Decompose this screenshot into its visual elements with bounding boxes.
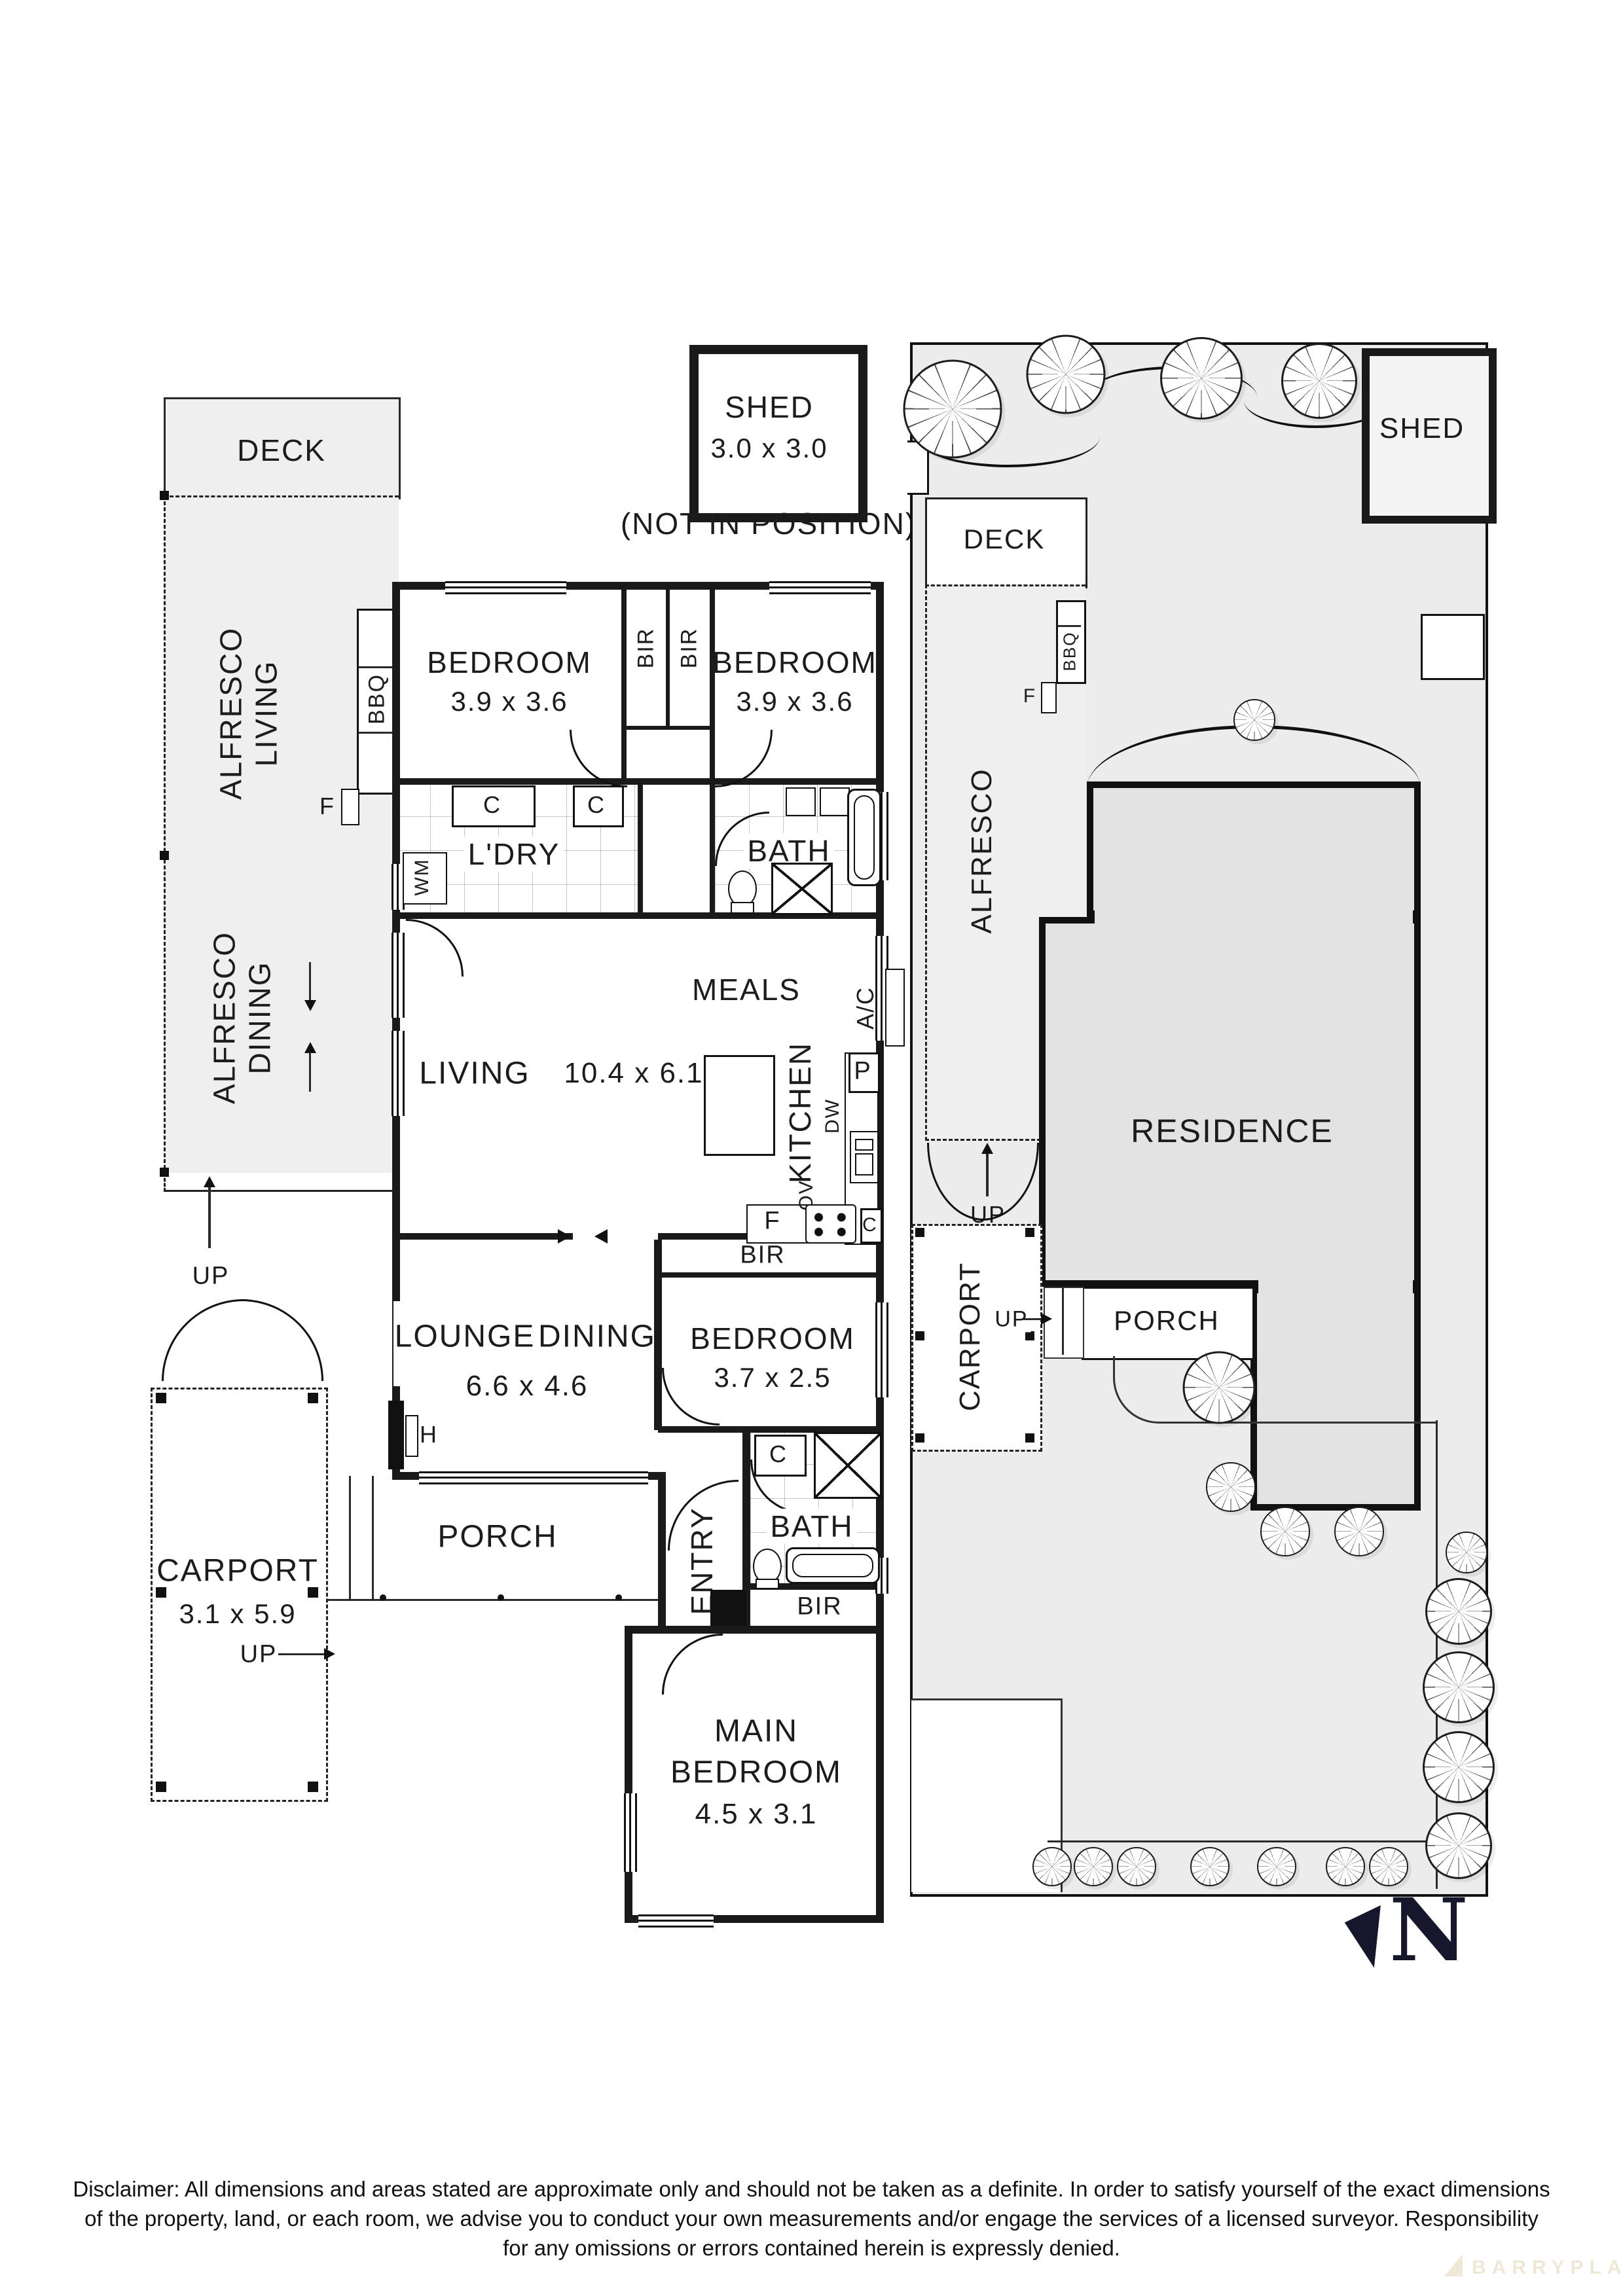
residence-label: RESIDENCE	[1131, 1112, 1334, 1150]
slide-arrow-line	[309, 1052, 311, 1092]
disclaimer-line2: of the property, land, or each room, we …	[0, 2204, 1623, 2233]
porch-label: PORCH	[437, 1519, 557, 1555]
residence-block	[1087, 781, 1421, 917]
carport-post	[1025, 1228, 1034, 1237]
residence-seam	[1258, 1276, 1413, 1298]
tree-icon	[903, 360, 1002, 459]
tree-icon	[1423, 1731, 1495, 1803]
step-line	[372, 1476, 374, 1600]
tree-icon	[1206, 1462, 1256, 1512]
arrow-left-icon	[594, 1229, 608, 1244]
site-deck-label: DECK	[964, 524, 1046, 555]
carport-post	[308, 1782, 318, 1792]
divider-opening	[573, 1233, 658, 1240]
disclaimer-line1: Disclaimer: All dimensions and areas sta…	[0, 2174, 1623, 2204]
tree-icon	[1190, 1847, 1230, 1886]
wall	[658, 1472, 666, 1634]
tree-icon	[1326, 1847, 1365, 1886]
carport-post	[156, 1393, 166, 1403]
bir1-label: BIR	[634, 628, 659, 669]
residence-seam	[1095, 906, 1413, 928]
tree-icon	[1425, 1812, 1492, 1879]
vanity	[786, 787, 816, 816]
door-arc	[406, 919, 464, 977]
wall	[666, 586, 670, 730]
wall	[625, 1626, 632, 1923]
tree-icon	[1281, 343, 1357, 419]
tree-icon	[1117, 1847, 1156, 1886]
cupboard-label: C	[483, 791, 501, 819]
tree-icon	[1027, 335, 1106, 414]
alfresco-living-label: ALFRESCO LIVING	[213, 627, 285, 800]
fireplace-box	[341, 789, 359, 825]
wall	[638, 782, 643, 912]
deck-post	[160, 851, 169, 860]
hws-unit	[405, 1415, 418, 1457]
detached-shed-title: SHED	[725, 389, 814, 425]
ac-label: A/C	[852, 986, 879, 1030]
bedroom1-label: BEDROOM	[427, 645, 592, 680]
step-line	[349, 1476, 351, 1600]
watermark-text: BARRYPLANT	[1472, 2257, 1623, 2279]
laundry-label: L'DRY	[464, 836, 564, 872]
kitchen-label: KITCHEN	[782, 1042, 818, 1183]
carport-post	[915, 1331, 924, 1340]
window	[392, 1031, 405, 1116]
alfresco-area	[164, 495, 399, 1175]
bath2-label: BATH	[766, 1509, 857, 1544]
tree-icon	[1257, 1847, 1296, 1886]
living-dims: 10.4 x 6.1	[564, 1057, 703, 1090]
tree-icon	[1425, 1578, 1492, 1645]
bbq-bench-divider	[358, 666, 395, 668]
bedroom3-label: BEDROOM	[690, 1321, 855, 1356]
carport-post	[308, 1393, 318, 1403]
carport-post	[915, 1433, 924, 1443]
tree-icon	[1446, 1532, 1487, 1573]
floorplan-page: SHED 3.0 x 3.0 (NOT IN POSITION) DECK AL…	[0, 0, 1623, 2296]
porch-post	[615, 1594, 622, 1601]
cupboard-label: C	[587, 791, 606, 819]
bedroom1-dims: 3.9 x 3.6	[450, 686, 568, 717]
up-arrow-icon	[1041, 1313, 1052, 1325]
site-f-label: F	[1023, 685, 1036, 708]
tree-icon	[1423, 1651, 1495, 1723]
compass-needle-icon	[1340, 1902, 1381, 1968]
ac-unit	[885, 969, 905, 1047]
bathtub-inner	[854, 795, 875, 880]
carport-area	[151, 1388, 328, 1802]
pantry-label: P	[854, 1058, 871, 1086]
fridge-shelf	[855, 1153, 873, 1175]
bir2-label: BIR	[677, 628, 702, 669]
french-door-arc	[162, 1299, 244, 1381]
carport-post	[915, 1228, 924, 1237]
tree-icon	[1260, 1507, 1310, 1556]
deck-label: DECK	[237, 433, 326, 468]
window	[769, 581, 871, 594]
kitchen-f-label: F	[761, 1208, 783, 1236]
disclaimer-line3: for any omissions or errors contained he…	[0, 2233, 1623, 2263]
bathtub-inner	[792, 1554, 873, 1577]
bath2-c-label: C	[769, 1441, 788, 1468]
not-in-position-note: (NOT IN POSITION)	[621, 506, 917, 541]
garden-bed-line	[1113, 1356, 1438, 1424]
window	[875, 1302, 888, 1397]
deck-post	[160, 1168, 169, 1177]
meals-label: MEALS	[692, 972, 801, 1007]
toilet-icon	[756, 1579, 779, 1589]
window	[445, 581, 566, 594]
deck-post	[160, 491, 169, 500]
fridge-shelf	[855, 1139, 873, 1151]
living-label: LIVING	[419, 1056, 530, 1092]
door-arc	[662, 1634, 723, 1695]
main-bedroom-dims: 4.5 x 3.1	[695, 1798, 818, 1831]
tree-icon	[1233, 699, 1275, 741]
carport-up-label: UP	[240, 1641, 278, 1669]
french-door-arc	[242, 1299, 323, 1381]
shower	[814, 1432, 882, 1499]
toilet-icon	[731, 902, 754, 914]
slide-arrow-line	[309, 962, 311, 1001]
carport-post	[1025, 1433, 1034, 1443]
porch-post	[498, 1594, 504, 1601]
bathtub	[847, 789, 881, 886]
wall	[658, 1272, 884, 1278]
neighbour-structure	[1421, 614, 1485, 680]
site-shed-label: SHED	[1379, 412, 1465, 445]
slide-arrow-up-icon	[304, 1042, 316, 1053]
carport-dims: 3.1 x 5.9	[179, 1598, 296, 1630]
up-arrow-icon	[204, 1176, 215, 1187]
site-bbq-label: BBQ	[1060, 632, 1080, 672]
carport-label: CARPORT	[156, 1553, 319, 1589]
bir4-label: BIR	[797, 1593, 842, 1621]
bbq-label: BBQ	[365, 673, 390, 725]
carport-post	[1025, 1331, 1034, 1340]
stove	[805, 1204, 856, 1244]
tree-icon	[1334, 1507, 1384, 1556]
slide-arrow-down-icon	[304, 1000, 316, 1011]
up-arrow-line	[208, 1186, 211, 1248]
step-line	[1062, 1288, 1064, 1355]
site-f-box	[1041, 682, 1057, 713]
site-porch-label: PORCH	[1114, 1305, 1220, 1336]
wall	[710, 586, 715, 778]
window	[624, 1793, 637, 1872]
up-arrow-line	[1023, 1318, 1042, 1320]
arrow-right-icon	[558, 1229, 571, 1244]
tree-icon	[1183, 1352, 1256, 1424]
alfresco-up-label: UP	[192, 1263, 230, 1291]
carport-post	[156, 1782, 166, 1792]
hws-label: H	[420, 1421, 438, 1448]
wall	[710, 782, 715, 912]
bench-f-label: F	[319, 793, 335, 820]
compass-north-label: N	[1389, 1880, 1468, 1981]
dining-label: DINING	[538, 1319, 656, 1355]
residence-block	[1039, 917, 1421, 1287]
bedroom3-dims: 3.7 x 2.5	[714, 1362, 831, 1393]
bir-block	[710, 1590, 746, 1626]
wall	[625, 726, 714, 730]
window	[638, 1914, 714, 1928]
kitchen-c-label: C	[862, 1214, 878, 1236]
bedroom2-dims: 3.9 x 3.6	[736, 686, 853, 717]
site-alfresco-label: ALFRESCO	[966, 768, 998, 933]
tree-icon	[1074, 1847, 1113, 1886]
meter-box	[388, 1401, 404, 1469]
up-arrow-icon	[324, 1648, 335, 1660]
shower	[771, 863, 833, 915]
vanity	[820, 787, 850, 816]
window	[419, 1471, 648, 1484]
dishwasher-label: DW	[822, 1098, 844, 1134]
lounge-label: LOUNGE	[395, 1319, 536, 1355]
tree-icon	[1032, 1847, 1072, 1886]
window	[392, 933, 405, 1018]
garden-bed-line	[1048, 1840, 1438, 1842]
garden-bed-line	[1436, 1420, 1438, 1889]
bedroom2-label: BEDROOM	[712, 645, 877, 680]
site-carport-label: CARPORT	[954, 1262, 987, 1411]
detached-shed-dims: 3.0 x 3.0	[710, 433, 828, 464]
washing-machine-label: WM	[411, 858, 433, 895]
bir3-label: BIR	[740, 1242, 785, 1270]
site-alfresco-lower	[925, 917, 1041, 1141]
bbq-bench-divider	[358, 732, 395, 734]
site-bbq-divider	[1057, 625, 1081, 627]
tree-icon	[1160, 337, 1243, 420]
porch-post	[380, 1594, 386, 1601]
watermark-logo-icon	[1444, 2254, 1463, 2276]
alfresco-dining-label: ALFRESCO DINING	[207, 931, 278, 1104]
lounge-dims: 6.6 x 4.6	[466, 1370, 589, 1403]
porch-edge	[324, 1599, 658, 1601]
main-bedroom-label2: BEDROOM	[670, 1755, 842, 1791]
alfresco-step	[164, 1173, 399, 1192]
bathtub	[786, 1547, 880, 1584]
up-arrow-line	[278, 1653, 324, 1655]
kitchen-island	[704, 1055, 775, 1156]
door-arc	[662, 1368, 720, 1426]
main-bedroom-label1: MAIN	[714, 1713, 798, 1749]
